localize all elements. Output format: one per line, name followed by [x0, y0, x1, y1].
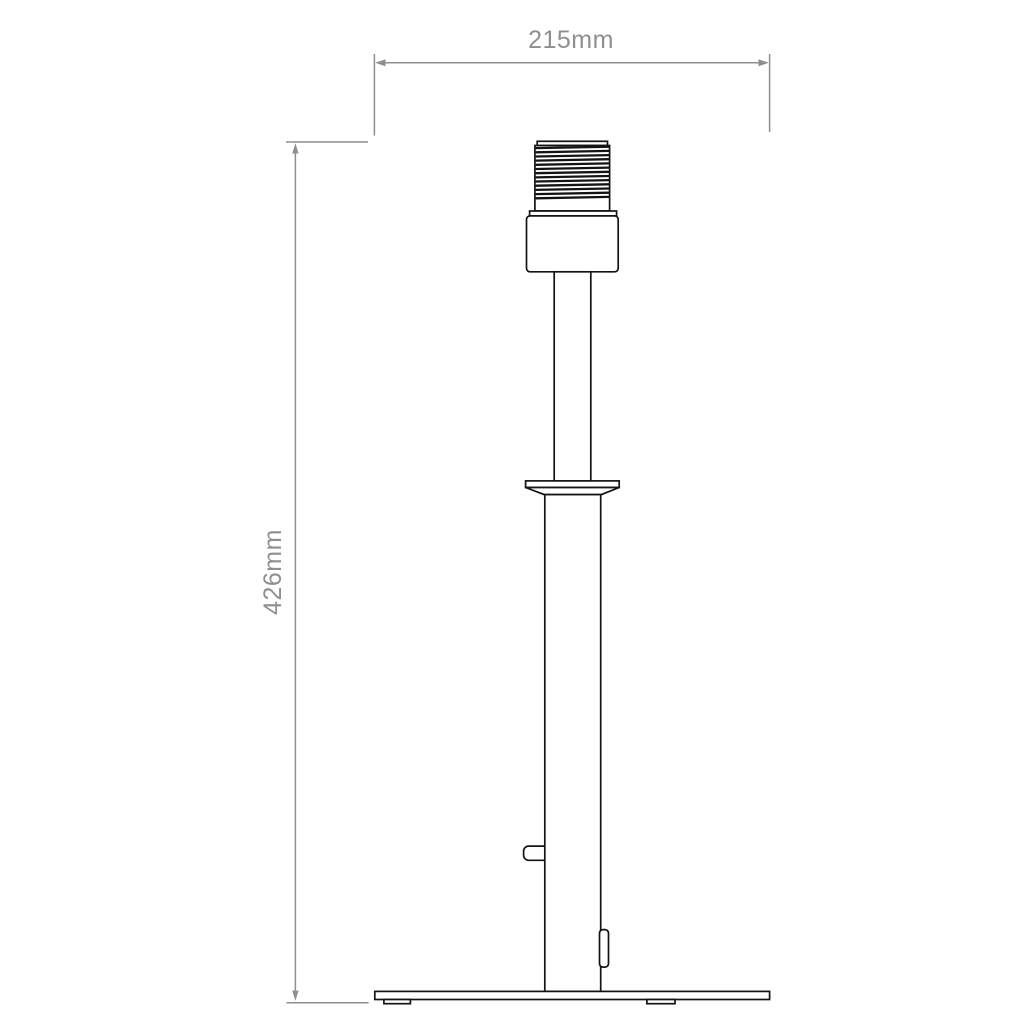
svg-text:215mm: 215mm [528, 26, 614, 54]
svg-text:426mm: 426mm [259, 529, 287, 615]
